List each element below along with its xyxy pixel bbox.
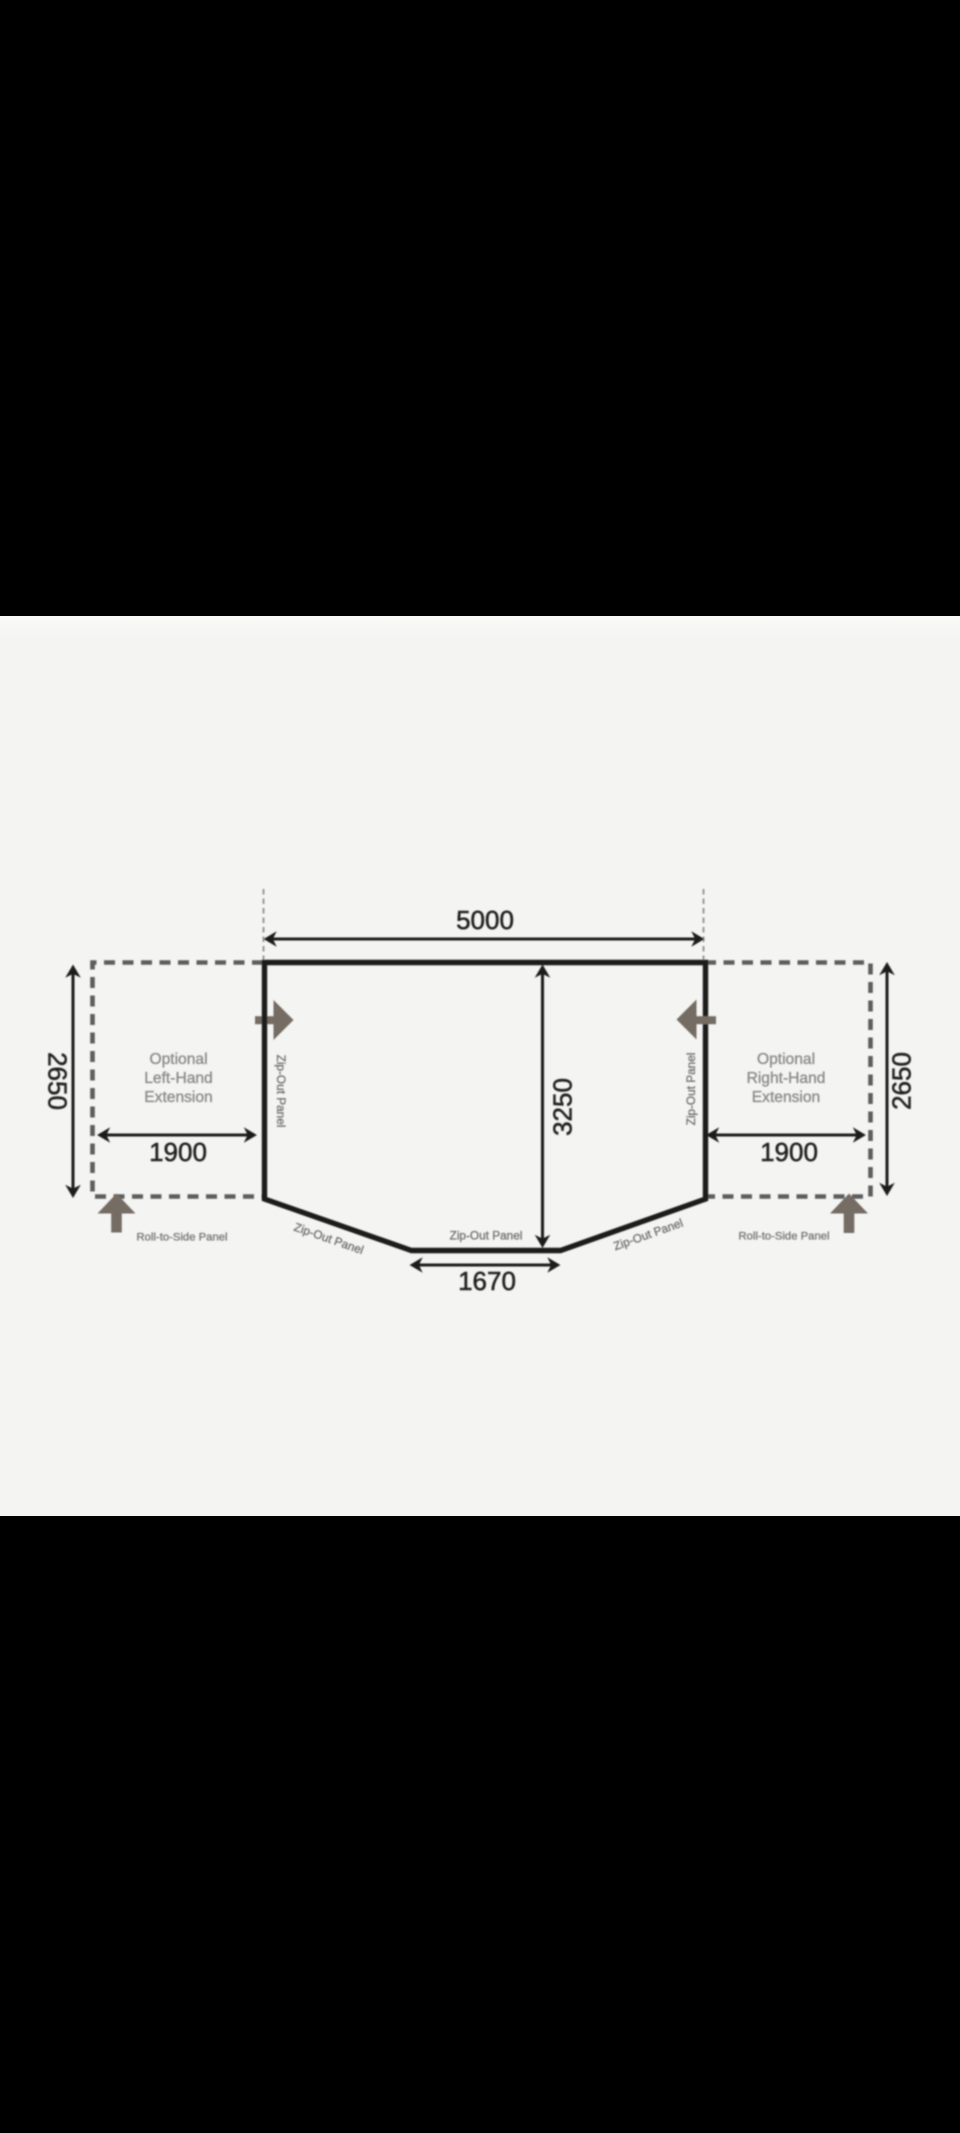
svg-text:1900: 1900 bbox=[149, 1137, 207, 1167]
svg-text:3250: 3250 bbox=[548, 1078, 578, 1136]
svg-text:Extension: Extension bbox=[144, 1089, 212, 1106]
svg-text:Left-Hand: Left-Hand bbox=[144, 1070, 212, 1087]
svg-text:2650: 2650 bbox=[43, 1052, 73, 1110]
svg-text:Right-Hand: Right-Hand bbox=[747, 1070, 826, 1087]
svg-text:1670: 1670 bbox=[458, 1266, 516, 1296]
svg-text:Optional: Optional bbox=[149, 1051, 207, 1068]
svg-text:2650: 2650 bbox=[887, 1052, 917, 1110]
svg-text:Optional: Optional bbox=[757, 1051, 815, 1068]
svg-text:Zip-Out Panel: Zip-Out Panel bbox=[274, 1055, 288, 1128]
svg-text:5000: 5000 bbox=[456, 905, 514, 935]
svg-text:1900: 1900 bbox=[760, 1137, 818, 1167]
svg-text:Roll-to-Side Panel: Roll-to-Side Panel bbox=[738, 1231, 829, 1243]
svg-text:Roll-to-Side Panel: Roll-to-Side Panel bbox=[136, 1232, 227, 1244]
svg-text:Zip-Out Panel: Zip-Out Panel bbox=[684, 1053, 698, 1126]
svg-text:Zip-Out Panel: Zip-Out Panel bbox=[450, 1229, 523, 1243]
svg-text:Extension: Extension bbox=[752, 1089, 820, 1106]
